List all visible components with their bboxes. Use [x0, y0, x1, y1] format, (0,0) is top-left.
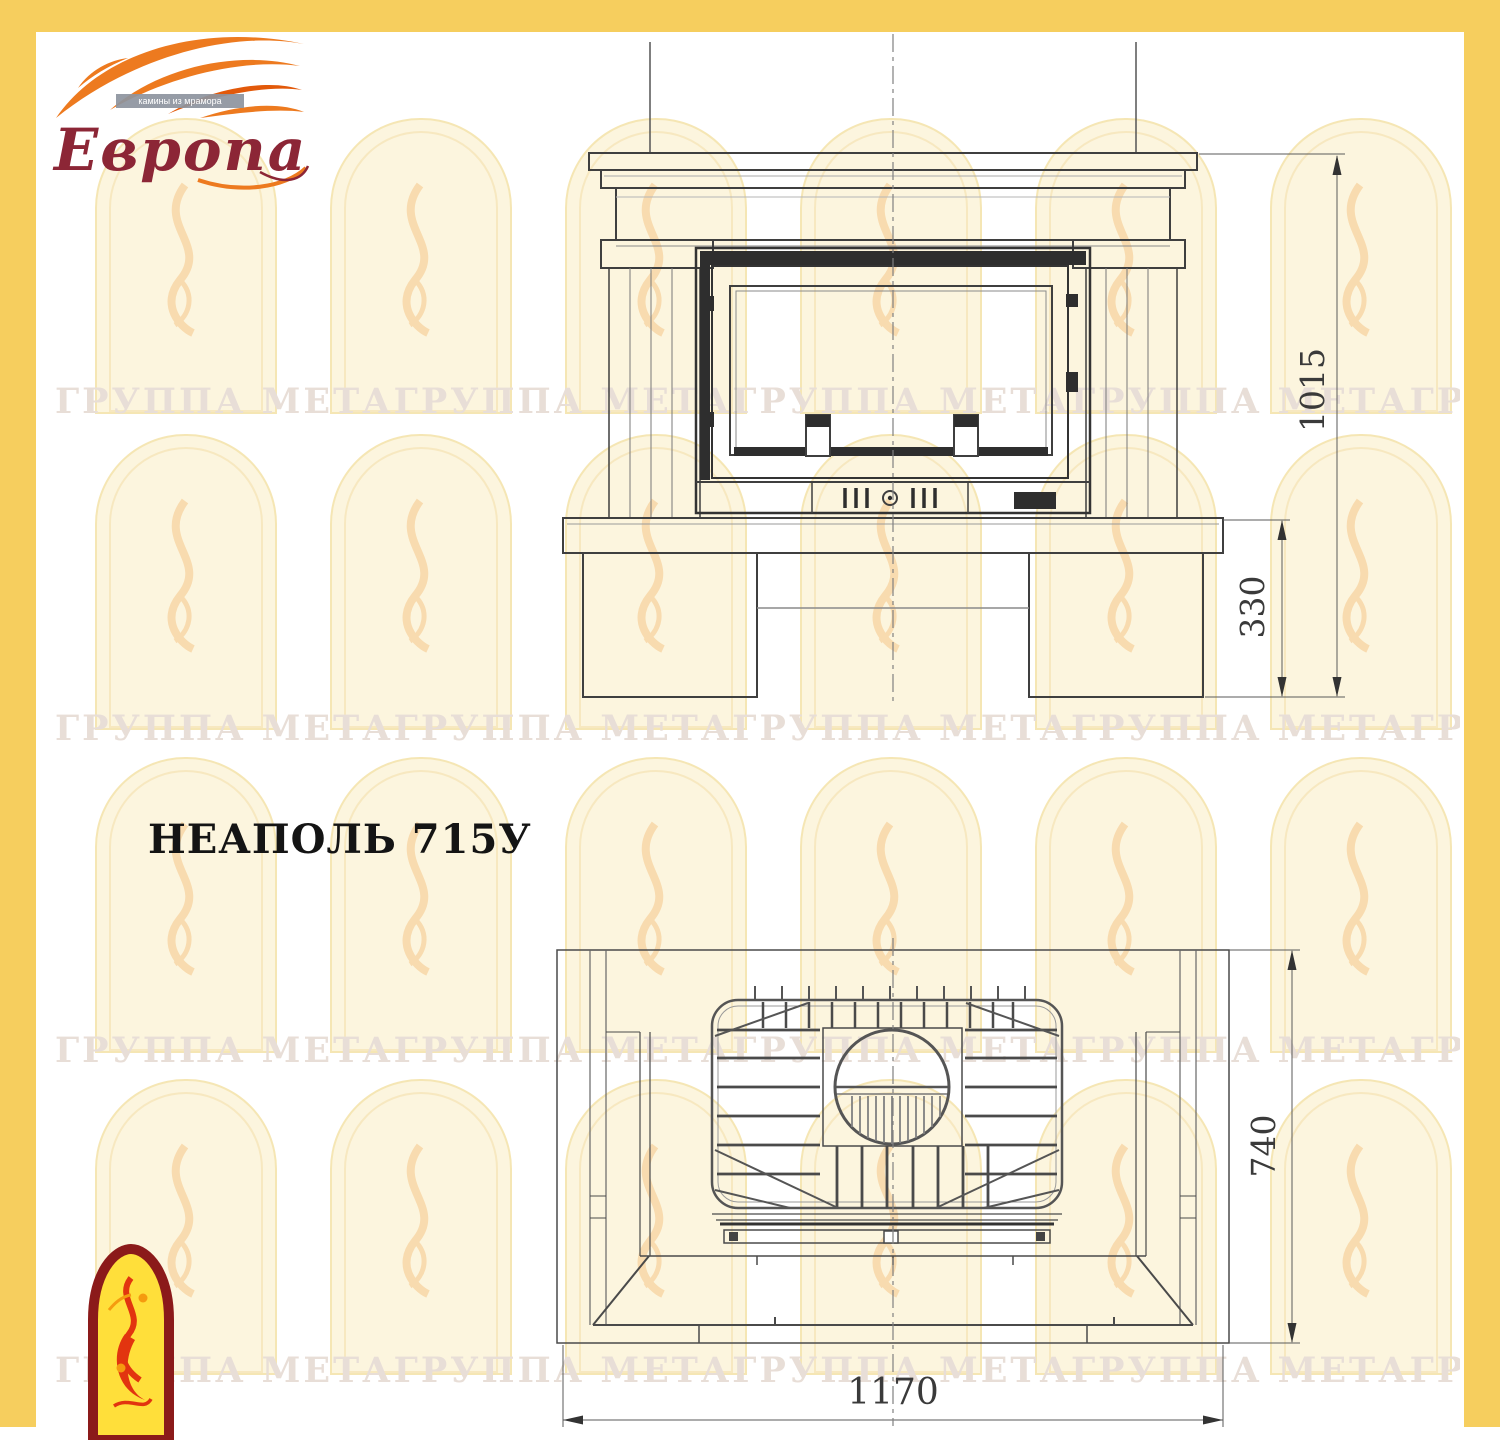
fireplace-technical-drawing — [0, 0, 1500, 1427]
yellow-border-top — [0, 0, 1500, 32]
rear-fins — [755, 986, 1025, 1000]
yellow-border-right — [1464, 0, 1500, 1427]
right-ribs — [965, 1030, 1057, 1174]
flame-logo-graphic: камины из мрамора Европа — [50, 18, 312, 196]
dimension-depth: 740 — [1244, 1091, 1278, 1201]
logo-brand-text: Европа — [52, 116, 307, 184]
dimension-base-height: 330 — [1233, 552, 1267, 662]
left-ribs — [717, 1030, 820, 1174]
catalog-page: { "page": { "background": "#ffffff", "fr… — [0, 0, 1500, 1427]
insert-top-plate — [712, 986, 1062, 1208]
bottom-ribs — [837, 1146, 988, 1208]
plan-view-dimension-lines — [563, 950, 1300, 1427]
europa-logo: камины из мрамора Европа — [50, 18, 312, 196]
firebird-emblem-graphic — [84, 1240, 178, 1440]
model-title: НЕАПОЛЬ 715У — [148, 816, 532, 863]
logo-tagline: камины из мрамора — [138, 96, 221, 106]
plan-view-dimension-arrows — [563, 950, 1297, 1425]
insert-badge — [1014, 492, 1056, 509]
dimension-total-height: 1015 — [1293, 315, 1327, 465]
dimension-width: 1170 — [813, 1372, 973, 1412]
yellow-border-left — [0, 0, 36, 1427]
firebird-emblem — [84, 1240, 178, 1440]
